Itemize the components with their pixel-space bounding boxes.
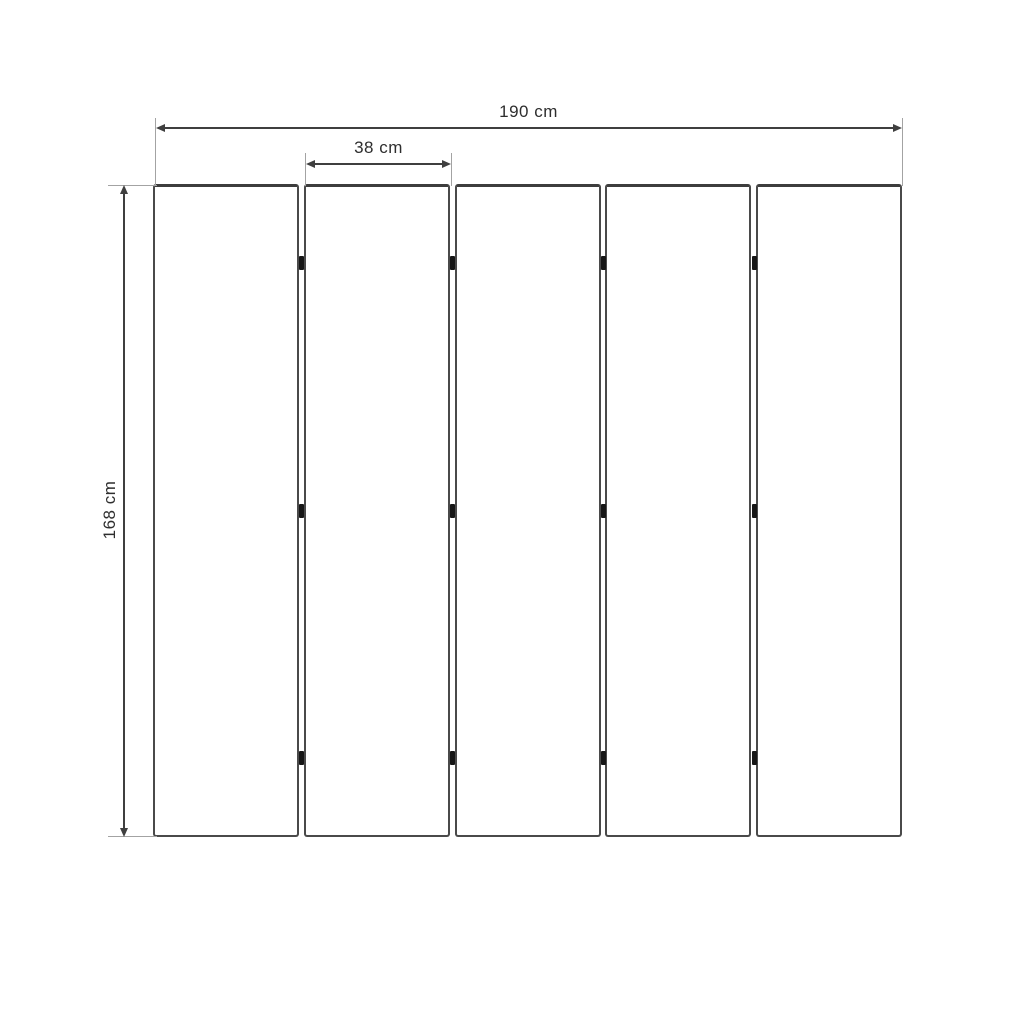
total-width-label: 190 cm [155, 102, 902, 122]
extension-line-height-bottom [108, 836, 157, 837]
hinge [450, 751, 455, 765]
panel-1 [153, 184, 299, 837]
extension-line-panel-width-right [451, 153, 452, 186]
hinge [601, 504, 606, 518]
panels-row [153, 184, 902, 837]
hinge [601, 751, 606, 765]
hinge [752, 256, 757, 270]
arrowhead-down-icon [120, 828, 128, 837]
hinge [299, 256, 304, 270]
hinge [299, 751, 304, 765]
panel-width-label: 38 cm [306, 138, 451, 158]
hinge [299, 504, 304, 518]
hinge [601, 256, 606, 270]
dimension-line-panel-width [310, 163, 447, 165]
extension-line-height-top [108, 185, 157, 186]
panel-3 [455, 184, 601, 837]
hinge [752, 504, 757, 518]
hinge [450, 256, 455, 270]
dimension-diagram: 190 cm 38 cm 168 cm [0, 0, 1024, 1024]
dimension-line-total-width [160, 127, 898, 129]
dimension-line-height [123, 190, 125, 832]
extension-line-total-width-right [902, 118, 903, 186]
arrowhead-right-icon [893, 124, 902, 132]
arrowhead-right-icon [442, 160, 451, 168]
arrowhead-left-icon [156, 124, 165, 132]
height-label: 168 cm [100, 453, 120, 567]
panel-4 [605, 184, 751, 837]
arrowhead-left-icon [306, 160, 315, 168]
arrowhead-up-icon [120, 185, 128, 194]
panel-2 [304, 184, 450, 837]
hinge [450, 504, 455, 518]
panel-5 [756, 184, 902, 837]
hinge [752, 751, 757, 765]
